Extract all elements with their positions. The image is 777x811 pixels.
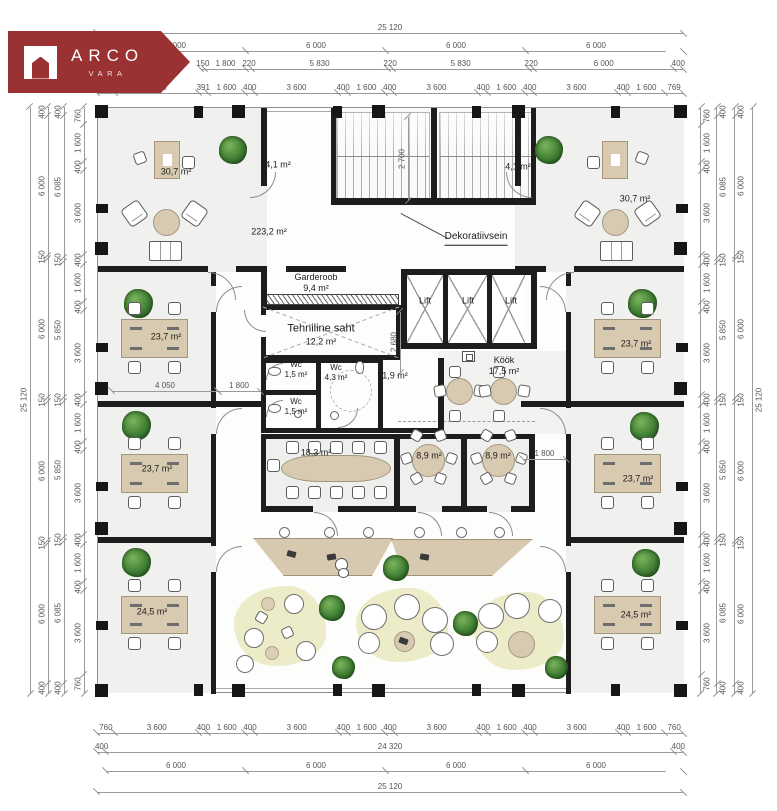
chair [352, 441, 365, 454]
round-table [358, 632, 380, 654]
dim-left-detail: 7601 6004003 6004001 6004003 6004001 600… [72, 107, 85, 693]
dim-segment: 3 600 [72, 591, 85, 675]
lift-car [407, 275, 443, 343]
column [674, 242, 687, 255]
dim-segment: 1 600 [72, 125, 85, 162]
dim-bottom-overall: 25 120 [97, 781, 683, 793]
pouf [265, 646, 279, 660]
wall [261, 390, 321, 395]
plant-icon [122, 411, 151, 440]
pouf [261, 597, 275, 611]
label-lift-2: Lift [462, 295, 474, 306]
chair [374, 441, 387, 454]
door-arc [540, 546, 566, 572]
label-stair-left: 4,1 m² [265, 159, 291, 170]
dim-segment: 4 050 [112, 380, 218, 392]
chair [168, 437, 181, 450]
dim-segment: 25 120 [97, 22, 683, 34]
label-office-top-left: 30,7 m² [161, 166, 192, 177]
chair [374, 486, 387, 499]
dim-segment: 6 000 [734, 402, 747, 541]
dim-segment: 760 [665, 722, 683, 734]
dim-segment: 1 600 [488, 722, 525, 734]
dim-segment: 1 800 [205, 58, 247, 70]
dim-right-detail: 7601 6004003 6004001 6004003 6004001 600… [700, 107, 713, 693]
label-kitchen: Köök17,5 m² [489, 355, 520, 378]
dim-segment: 1 800 [218, 380, 260, 392]
chair [128, 361, 141, 374]
wall [574, 266, 684, 272]
pier [333, 106, 342, 118]
plant-icon [319, 595, 345, 621]
dim-segment: 6 000 [734, 259, 747, 398]
dim-right-axes: 4006 0001506 0001506 0001506 000400 [734, 107, 747, 693]
logo-subtitle: VARA [89, 69, 127, 78]
dim-segment: 6 000 [526, 760, 666, 772]
dim-segment: 1 600 [72, 405, 85, 442]
wall [261, 434, 266, 512]
dim-segment: 6 000 [386, 40, 526, 52]
meeting-table [281, 455, 391, 482]
dim-segment: 24 320 [106, 741, 673, 753]
column [372, 684, 385, 697]
chair [267, 459, 280, 472]
dim-segment: 3 600 [394, 82, 478, 94]
dim-room-width: 4 050 [112, 380, 218, 392]
pier [96, 482, 108, 491]
dim-segment: 25 120 [18, 107, 31, 693]
dim-segment: 3 600 [700, 171, 713, 255]
wall [316, 358, 321, 433]
column [232, 684, 245, 697]
dim-segment: 1 600 [700, 265, 713, 302]
pier [194, 684, 203, 696]
round-table [538, 599, 562, 623]
dim-corridor-right: 1 800 [523, 448, 566, 460]
dim-segment: 6 000 [734, 116, 747, 255]
dim-segment: 3 600 [700, 591, 713, 675]
chair [168, 496, 181, 509]
wall [431, 108, 437, 205]
chair [286, 486, 299, 499]
dim-segment: 6 000 [526, 40, 666, 52]
label-wc-3: Wc4,3 m² [325, 363, 348, 383]
chair [128, 302, 141, 315]
pier [472, 106, 481, 118]
dim-segment: 400 [52, 684, 65, 693]
dim-segment: 1 600 [208, 82, 245, 94]
dim-segment: 5 830 [393, 58, 529, 70]
pier [96, 343, 108, 352]
wall [378, 358, 383, 433]
chair [168, 361, 181, 374]
chair [641, 302, 654, 315]
floor-office-top-left [98, 108, 267, 272]
column [95, 684, 108, 697]
chair [641, 437, 654, 450]
chair [286, 441, 299, 454]
dim-segment: 1 600 [700, 125, 713, 162]
dim-segment: 400 [674, 58, 683, 70]
label-office-top-right: 30,7 m² [620, 193, 651, 204]
round-table [490, 378, 517, 405]
dim-lobby-depth: 2 680 [388, 312, 401, 372]
round-table [296, 641, 316, 661]
wall [211, 434, 216, 546]
dim-segment: 6 000 [534, 58, 674, 70]
round-table [476, 631, 498, 653]
wall [529, 434, 535, 512]
door-arc [250, 172, 276, 198]
column [232, 105, 245, 118]
chair [128, 579, 141, 592]
wall [98, 266, 208, 272]
dim-segment: 6 000 [36, 402, 49, 541]
pier [676, 621, 688, 630]
label-office-left-2: 23,7 m² [142, 463, 173, 474]
wall [261, 266, 267, 306]
round-table [602, 209, 629, 236]
label-tech-shaft: Tehniline saht12,2 m² [287, 323, 354, 348]
reception-counter-right [391, 539, 533, 576]
dim-segment: 5 850 [716, 402, 729, 538]
chair [601, 437, 614, 450]
dim-segment: 6 085 [716, 542, 729, 684]
dim-segment: 2 700 [396, 117, 409, 200]
dim-segment: 760 [72, 107, 85, 125]
dim-segment: 6 085 [52, 116, 65, 258]
plant-icon [545, 656, 568, 679]
garderoob-rack [263, 294, 399, 305]
label-office-right-1: 23,7 m² [621, 338, 652, 349]
wall [394, 434, 400, 512]
wall [261, 506, 313, 512]
wall [401, 343, 537, 349]
desk [602, 141, 628, 179]
column [95, 242, 108, 255]
dim-top-overall: 25 120 [97, 22, 683, 34]
chair [601, 302, 614, 315]
dim-left-overall: 25 120 [18, 107, 31, 693]
wall [211, 572, 216, 694]
plant-icon [332, 656, 355, 679]
dim-segment: 769 [665, 82, 683, 94]
chair [493, 410, 505, 422]
column [674, 382, 687, 395]
round-table [153, 209, 180, 236]
round-table [244, 628, 264, 648]
dim-segment: 1 600 [72, 265, 85, 302]
dim-segment: 6 000 [246, 40, 386, 52]
chair [601, 637, 614, 650]
stool [279, 527, 290, 538]
dim-segment: 1 600 [628, 82, 665, 94]
dim-segment: 1 600 [700, 545, 713, 582]
chair [330, 486, 343, 499]
round-table [422, 607, 448, 633]
wall [521, 401, 684, 407]
lift-car [492, 275, 525, 343]
wall [211, 312, 216, 408]
dim-segment: 25 120 [97, 781, 683, 793]
toilet-icon [268, 367, 281, 376]
label-meeting-small-2: 8,9 m² [485, 450, 511, 461]
laptop-icon [420, 553, 430, 560]
toilet-icon [268, 404, 281, 413]
stool [456, 527, 467, 538]
pier [96, 204, 108, 213]
lift-call-panel [462, 351, 475, 362]
column [674, 105, 687, 118]
chair [517, 384, 531, 398]
dim-bottom-axes: 6 0006 0006 0006 000 [97, 760, 683, 772]
dim-segment: 400 [674, 741, 683, 753]
sink-icon [330, 411, 339, 420]
pier [611, 684, 620, 696]
dim-segment: 760 [700, 675, 713, 693]
column [512, 105, 525, 118]
pier [96, 621, 108, 630]
chair [587, 156, 600, 169]
wall [98, 401, 261, 407]
column [95, 522, 108, 535]
dim-top-detail: 7603 6003911 6004003 6004001 6004003 600… [97, 82, 683, 94]
dim-segment: 6 000 [734, 544, 747, 683]
chair [128, 437, 141, 450]
chair [330, 441, 343, 454]
plant-icon [535, 136, 563, 164]
dim-bottom-inner: 40024 320400 [97, 741, 683, 753]
wall [531, 269, 537, 349]
dim-segment: 1 600 [488, 82, 525, 94]
chair [168, 579, 181, 592]
label-garderoob: Garderoob9,4 m² [294, 272, 337, 295]
column [674, 522, 687, 535]
dim-segment: 400 [734, 684, 747, 693]
round-table [361, 604, 387, 630]
wall [566, 572, 571, 694]
chair [641, 361, 654, 374]
round-table [236, 655, 254, 673]
wall [261, 358, 266, 433]
pier [676, 204, 688, 213]
label-open-office: 223,2 m² [251, 226, 287, 237]
dim-right-rooms: 4006 0851505 8501505 8501506 085400 [716, 107, 729, 693]
dim-segment: 6 000 [106, 760, 246, 772]
label-wc-1: Wc1,5 m² [285, 360, 308, 380]
stool [494, 527, 505, 538]
plant-icon [122, 548, 151, 577]
dim-right-overall: 25 120 [752, 107, 765, 693]
chair [449, 366, 461, 378]
dim-segment: 1 600 [208, 722, 245, 734]
arco-vara-logo: ARCO VARA [8, 31, 190, 93]
dim-segment: 5 830 [252, 58, 388, 70]
label-decorative-wall: Dekoratiivsein [445, 231, 508, 246]
round-table [478, 603, 504, 629]
column [512, 684, 525, 697]
dim-segment: 6 000 [36, 259, 49, 398]
wall [98, 537, 216, 543]
chair [478, 384, 492, 398]
pier [333, 684, 342, 696]
dim-segment: 5 850 [52, 262, 65, 398]
chair [352, 486, 365, 499]
chair [641, 579, 654, 592]
label-office-left-1: 23,7 m² [151, 331, 182, 342]
dim-segment: 5 850 [716, 262, 729, 398]
stool [414, 527, 425, 538]
pier [611, 106, 620, 118]
dim-segment: 1 600 [348, 82, 385, 94]
label-stair-right: 4,1 m² [505, 161, 531, 172]
label-meeting-small-1: 8,9 m² [416, 450, 442, 461]
dim-segment: 2 680 [388, 312, 401, 372]
dim-segment: 6 000 [246, 760, 386, 772]
dim-segment: 25 120 [752, 107, 765, 693]
chair [433, 384, 447, 398]
label-lift-1: Lift [419, 295, 431, 306]
label-wc-2: Wc1,5 m² [285, 397, 308, 417]
round-table [504, 593, 530, 619]
dim-segment: 6 000 [36, 116, 49, 255]
wall [566, 537, 684, 543]
dim-segment: 1 800 [523, 448, 566, 460]
dim-segment: 3 600 [395, 722, 479, 734]
dim-segment: 3 600 [534, 82, 618, 94]
dim-bottom-detail: 7603 6004001 6004003 6004001 6004003 600… [97, 722, 683, 734]
dim-segment: 1 600 [628, 722, 665, 734]
label-lift-3: Lift [505, 295, 517, 306]
door-arc [216, 546, 242, 572]
staircase-left [336, 112, 430, 199]
lift-car [448, 275, 487, 343]
pier [472, 684, 481, 696]
logo-title: ARCO [71, 46, 144, 66]
floor-plan-page: ARCO VARA 25 120 6 0006 0006 0006 000 15… [0, 0, 777, 811]
chair [601, 361, 614, 374]
label-meeting-large: 18,3 m² [301, 447, 332, 458]
glass-partition-line [398, 421, 535, 422]
house-icon [24, 46, 57, 79]
dim-segment: 6 085 [716, 116, 729, 258]
round-table [394, 594, 420, 620]
plant-icon [632, 549, 660, 577]
wall [461, 434, 467, 512]
dim-segment: 3 600 [72, 451, 85, 535]
stool [363, 527, 374, 538]
sofa [149, 241, 182, 261]
dim-corridor-left: 1 800 [218, 380, 260, 392]
column [95, 105, 108, 118]
label-office-right-2: 23,7 m² [623, 473, 654, 484]
wall [566, 434, 571, 546]
dim-segment: 6 085 [52, 542, 65, 684]
label-office-bottom-left: 24,5 m² [137, 606, 168, 617]
dim-segment: 1 600 [700, 405, 713, 442]
stool [324, 527, 335, 538]
dim-segment: 1 600 [348, 722, 385, 734]
dim-segment: 760 [97, 722, 115, 734]
round-table [446, 378, 473, 405]
dim-segment: 3 600 [535, 722, 619, 734]
dim-top-axes: 6 0006 0006 0006 000 [97, 40, 683, 52]
dim-segment: 760 [72, 675, 85, 693]
dim-segment: 1 600 [72, 545, 85, 582]
dim-segment: 3 600 [72, 311, 85, 395]
column [372, 105, 385, 118]
wall [338, 506, 416, 512]
decorative-wall-leader [401, 213, 448, 239]
dim-segment: 3 600 [700, 311, 713, 395]
dim-segment: 3 600 [700, 451, 713, 535]
pier [676, 343, 688, 352]
dim-left-rooms: 4006 0851505 8501505 8501506 085400 [52, 107, 65, 693]
chair [601, 496, 614, 509]
column [674, 684, 687, 697]
pier [194, 106, 203, 118]
dim-stair-depth: 2 700 [396, 117, 409, 200]
wall [331, 108, 336, 205]
dim-segment: 6 000 [386, 760, 526, 772]
column [95, 382, 108, 395]
chair [128, 637, 141, 650]
chair [641, 496, 654, 509]
chair [308, 486, 321, 499]
floor-plan: 30,7 m² 30,7 m² 4,1 m² 4,1 m² 223,2 m² D… [97, 107, 683, 693]
wall [566, 312, 571, 408]
chair [168, 302, 181, 315]
round-table [284, 594, 304, 614]
plant-icon [219, 136, 247, 164]
dim-segment: 5 850 [52, 402, 65, 538]
round-table [508, 631, 535, 658]
person-icon [335, 558, 348, 571]
chair [449, 410, 461, 422]
dim-segment: 3 600 [255, 82, 339, 94]
pier [676, 482, 688, 491]
plant-icon [453, 611, 478, 636]
dim-segment: 6 000 [36, 544, 49, 683]
dim-segment: 3 600 [115, 722, 199, 734]
dim-segment: 400 [36, 684, 49, 693]
door-arc [216, 408, 242, 434]
chair [641, 637, 654, 650]
label-hall: 1,9 m² [382, 370, 408, 381]
dim-segment: 400 [716, 684, 729, 693]
dim-left-axes: 4006 0001506 0001506 0001506 000400 [36, 107, 49, 693]
plant-icon [383, 555, 409, 581]
label-office-bottom-right: 24,5 m² [621, 609, 652, 620]
chair [168, 637, 181, 650]
sofa [600, 241, 633, 261]
chair [128, 496, 141, 509]
chair [601, 579, 614, 592]
dim-segment: 3 600 [72, 171, 85, 255]
round-table [430, 632, 454, 656]
reception-counter-left [253, 538, 393, 576]
dim-segment: 3 600 [255, 722, 339, 734]
